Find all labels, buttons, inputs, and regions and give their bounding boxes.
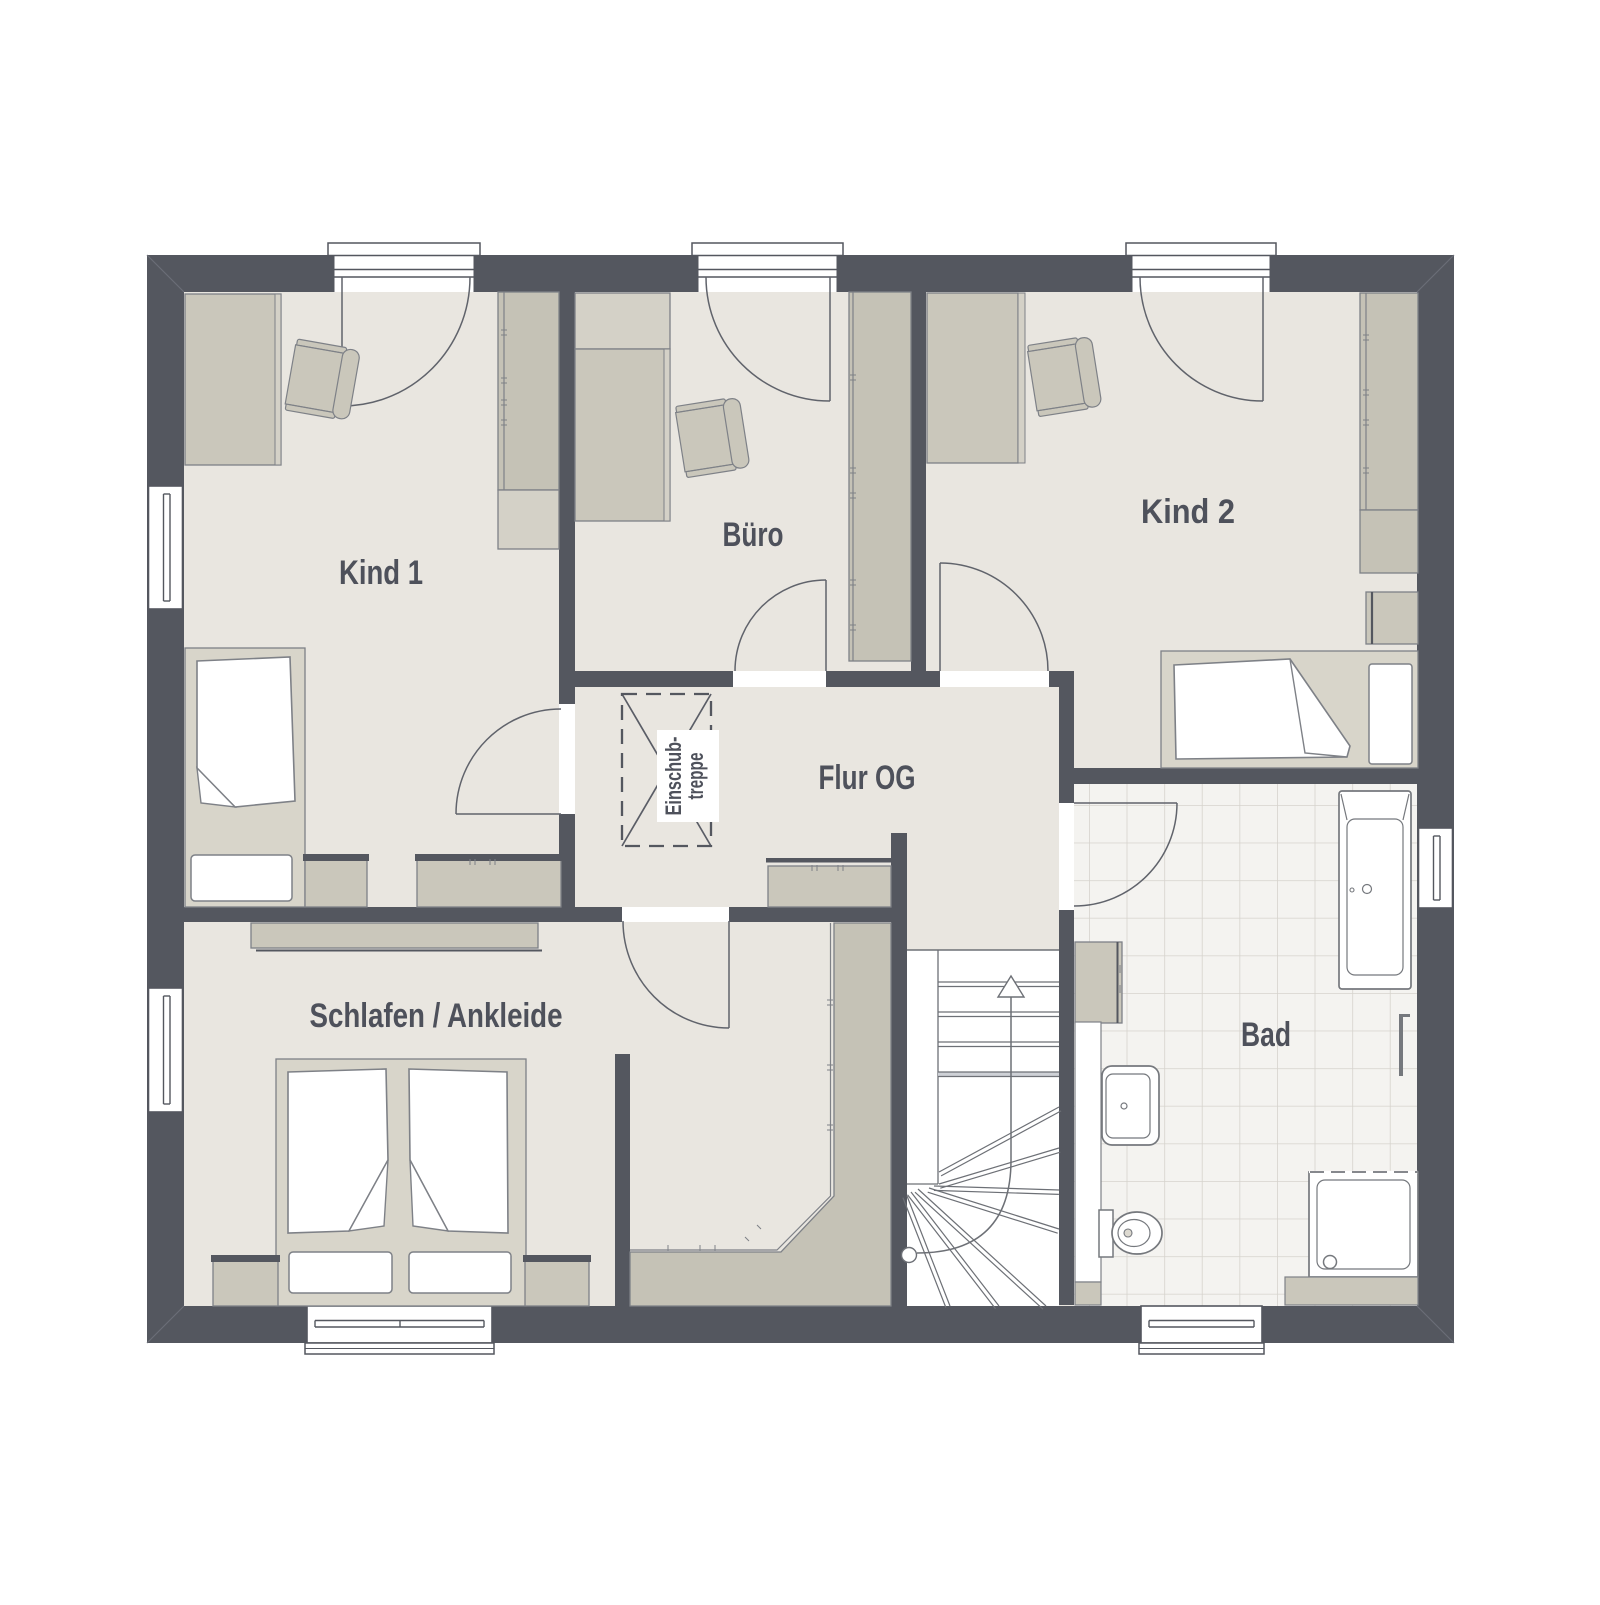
svg-text:Bad: Bad <box>1241 1016 1291 1054</box>
svg-text:Kind 1: Kind 1 <box>339 554 423 592</box>
svg-text:treppe: treppe <box>683 753 708 800</box>
svg-text:Kind 2: Kind 2 <box>1141 493 1235 531</box>
svg-text:Schlafen / Ankleide: Schlafen / Ankleide <box>310 997 563 1035</box>
svg-text:Flur OG: Flur OG <box>819 759 916 797</box>
svg-text:Büro: Büro <box>723 516 784 554</box>
